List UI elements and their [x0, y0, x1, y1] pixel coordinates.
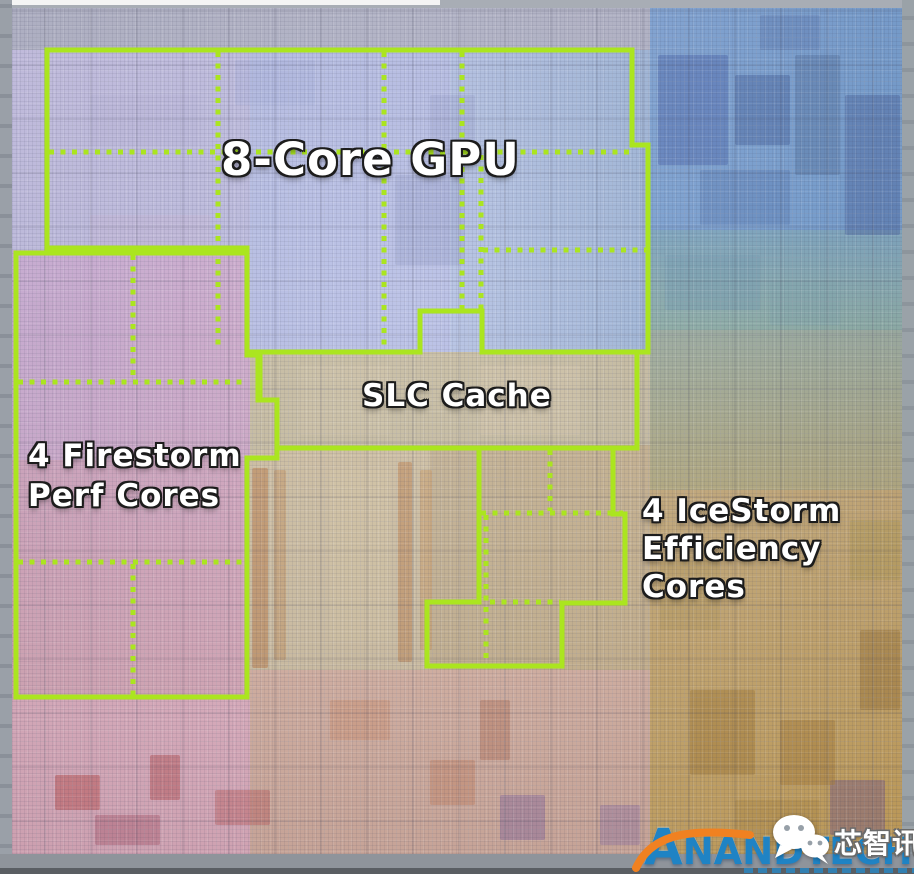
- firestorm-label-line1: 4 Firestorm: [28, 436, 242, 476]
- firestorm-label-line2: Perf Cores: [28, 476, 242, 516]
- icestorm-label-line1: 4 IceStorm: [642, 492, 841, 530]
- wechat-icon: [770, 812, 830, 864]
- gpu-core-dividers: [49, 52, 646, 350]
- slc-cache-label: SLC Cache: [362, 378, 552, 414]
- gpu-region-outline: [47, 50, 648, 352]
- icestorm-label-line3: Cores: [642, 568, 841, 606]
- icestorm-region-outline: [427, 448, 625, 666]
- gpu-region-label: 8-Core GPU: [221, 133, 520, 186]
- anandtech-tagline-cutoff: [744, 868, 914, 873]
- icestorm-label-line2: Efficiency: [642, 530, 841, 568]
- wechat-account-name: 芯智讯: [834, 822, 914, 862]
- icestorm-cores-label: 4 IceStorm Efficiency Cores: [642, 492, 841, 606]
- icestorm-core-dividers: [481, 450, 623, 664]
- firestorm-cores-label: 4 Firestorm Perf Cores: [28, 436, 242, 516]
- wechat-watermark: 芯智讯: [770, 812, 914, 864]
- m1-die-annotated-screenshot: 8-Core GPU SLC Cache 4 Firestorm Perf Co…: [0, 0, 914, 874]
- anandtech-swoosh-icon: [632, 818, 756, 872]
